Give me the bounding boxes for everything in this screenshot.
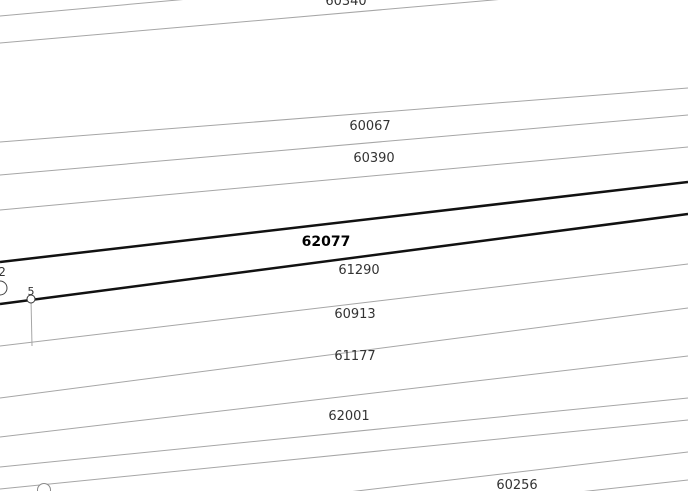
cadastral-map-view[interactable]: 6034060067603906207761290609136117762001… [0,0,688,491]
parcel-boundary-line-thick [0,182,688,262]
point-label-2: 2 [0,265,6,279]
tie-line [31,299,32,346]
tie-line-layer [31,299,32,346]
parcel-boundary-line [0,420,688,489]
parcel-label-62001: 62001 [328,409,369,424]
parcel-label-61290: 61290 [338,263,379,278]
parcel-label-60256: 60256 [496,478,537,491]
parcel-boundary-line [0,88,688,142]
survey-point-marker [0,281,7,295]
parcel-boundary-line [0,356,688,437]
parcel-boundary-line [0,480,688,491]
parcel-label-62077: 62077 [302,234,351,250]
survey-point-markers-layer [0,281,51,491]
parcel-label-60913: 60913 [334,307,375,322]
parcel-boundary-line [0,147,688,210]
point-label-5: 5 [28,285,35,298]
parcel-label-60340: 60340 [325,0,366,9]
parcel-boundary-line [0,115,688,175]
parcel-boundary-line [0,452,688,491]
parcel-label-60067: 60067 [349,119,390,134]
map-canvas[interactable]: 6034060067603906207761290609136117762001… [0,0,688,491]
parcel-label-61177: 61177 [334,349,375,364]
parcel-labels-layer: 6034060067603906207761290609136117762001… [0,0,538,491]
parcel-boundary-line-thick [0,214,688,304]
parcel-label-60390: 60390 [353,151,394,166]
